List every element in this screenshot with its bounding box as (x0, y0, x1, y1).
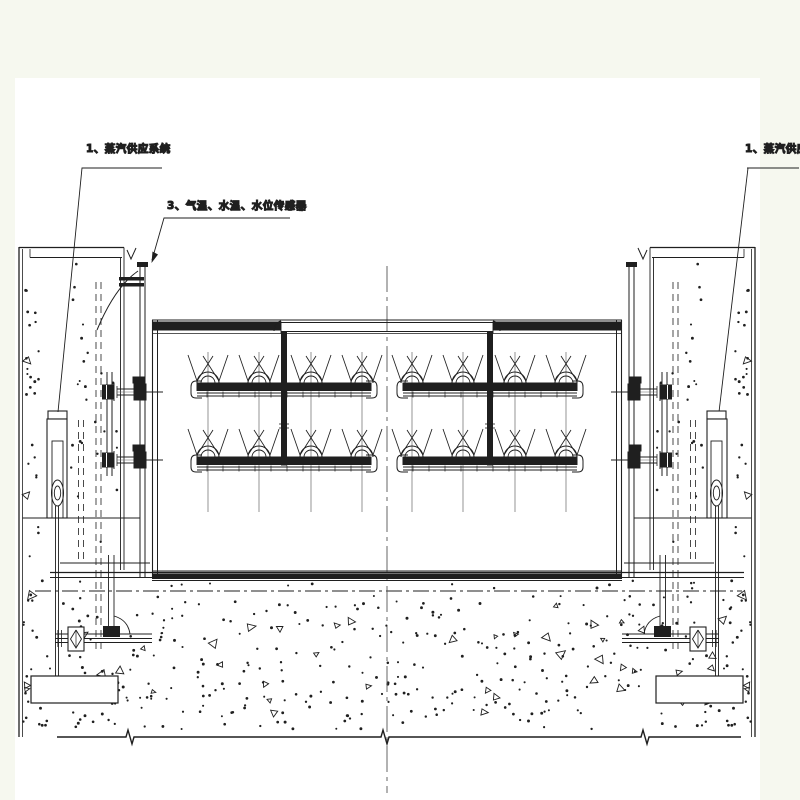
stipple-dot (530, 656, 532, 658)
stipple-dot (100, 541, 101, 542)
stipple-dot (26, 675, 28, 677)
stipple-dot (678, 421, 680, 423)
stipple-dot (25, 692, 27, 694)
stipple-dot (743, 376, 745, 378)
stipple-dot (221, 683, 223, 685)
stipple-dot (361, 700, 363, 702)
guide-cap (137, 262, 148, 267)
stipple-dot (82, 324, 83, 325)
stipple-dot (39, 723, 41, 725)
stipple-dot (354, 628, 356, 630)
stipple-dot (731, 580, 733, 582)
stipple-dot (198, 604, 199, 605)
stipple-dot (496, 647, 497, 648)
stipple-dot (606, 640, 607, 641)
stipple-dot (72, 608, 74, 610)
stipple-dot (45, 724, 47, 726)
stipple-dot (29, 556, 30, 557)
stipple-dot (718, 710, 720, 712)
stipple-dot (34, 393, 36, 395)
stipple-dot (647, 647, 648, 648)
sensor-label: 3、气温、水温、水位传感器 (167, 199, 307, 212)
guide-cap (626, 262, 637, 267)
stipple-dot (486, 704, 487, 705)
stipple-dot (694, 622, 695, 623)
stipple-dot (513, 713, 515, 715)
stipple-dot (689, 361, 691, 363)
stipple-dot (116, 431, 118, 433)
stipple-dot (747, 289, 749, 291)
stipple-dot (140, 697, 141, 698)
stipple-dot (363, 603, 365, 605)
stipple-dot (38, 526, 39, 527)
stipple-dot (657, 447, 658, 448)
stipple-dot (748, 692, 750, 694)
stipple-dot (86, 399, 87, 400)
stipple-dot (160, 636, 162, 638)
stipple-dot (373, 595, 374, 596)
stipple-dot (736, 636, 738, 638)
stipple-dot (696, 725, 698, 727)
stipple-dot (378, 607, 380, 609)
stipple-dot (738, 393, 740, 395)
stipple-dot (536, 693, 538, 695)
stipple-dot (34, 312, 36, 314)
stipple-dot (27, 311, 29, 313)
stipple-dot (307, 619, 309, 621)
stipple-dot (79, 440, 81, 442)
stipple-dot (174, 639, 176, 641)
stipple-dot (202, 695, 204, 697)
stipple-dot (403, 692, 405, 694)
cylinder-head (707, 411, 726, 419)
stipple-dot (407, 693, 409, 695)
stipple-dot (614, 653, 615, 654)
stipple-dot (239, 633, 240, 634)
stipple-dot (260, 725, 261, 726)
stipple-dot (586, 623, 588, 625)
stipple-dot (288, 585, 289, 586)
stipple-dot (28, 463, 29, 464)
stipple-dot (675, 726, 677, 728)
stipple-dot (618, 680, 619, 681)
spray-header-pipe (197, 457, 371, 465)
stipple-dot (372, 628, 373, 629)
stipple-dot (632, 580, 633, 581)
stipple-dot (172, 608, 173, 609)
stipple-dot (432, 615, 433, 616)
stipple-dot (221, 716, 222, 717)
stipple-dot (694, 381, 695, 382)
stipple-dot (697, 263, 699, 265)
stipple-dot (514, 666, 516, 668)
stipple-dot (141, 707, 142, 708)
stipple-dot (159, 639, 161, 641)
stipple-dot (311, 583, 313, 585)
stipple-dot (116, 447, 117, 448)
stipple-dot (723, 668, 724, 669)
stipple-dot (132, 654, 134, 656)
stipple-dot (27, 373, 28, 374)
stipple-dot (729, 622, 731, 624)
stipple-dot (723, 599, 724, 600)
conduit-band2 (119, 283, 144, 287)
stipple-dot (247, 662, 248, 663)
stipple-dot (28, 701, 29, 702)
stipple-dot (732, 642, 734, 644)
stipple-dot (503, 634, 505, 636)
stipple-dot (548, 710, 549, 711)
stipple-dot (333, 681, 335, 683)
stipple-dot (486, 647, 488, 649)
stipple-dot (497, 663, 498, 664)
stipple-dot (38, 532, 40, 534)
stipple-dot (72, 444, 74, 446)
stipple-dot (32, 600, 33, 601)
stipple-dot (75, 726, 77, 728)
stipple-dot (32, 630, 33, 631)
stipple-dot (83, 361, 85, 363)
stipple-dot (566, 690, 568, 692)
stipple-dot (452, 703, 453, 704)
stipple-dot (586, 686, 587, 687)
stipple-dot (700, 299, 702, 301)
stipple-dot (122, 686, 124, 688)
stipple-dot (738, 381, 740, 383)
stipple-dot (90, 639, 91, 640)
cylinder-body (707, 419, 727, 518)
stipple-dot (690, 582, 691, 583)
feed-pipe (282, 332, 287, 465)
stipple-dot (331, 646, 333, 648)
stipple-dot (661, 713, 662, 714)
stipple-dot (379, 635, 380, 636)
stipple-dot (162, 633, 163, 634)
stipple-dot (97, 453, 98, 454)
stipple-dot (669, 431, 670, 432)
stipple-dot (701, 725, 702, 726)
stipple-dot (653, 604, 655, 606)
stipple-dot (458, 609, 460, 611)
stipple-dot (710, 705, 712, 707)
stipple-dot (166, 698, 167, 699)
stipple-dot (676, 622, 678, 624)
stipple-dot (542, 670, 544, 672)
stipple-dot (310, 695, 312, 697)
stipple-dot (397, 662, 398, 663)
stipple-dot (438, 617, 440, 619)
stipple-dot (397, 676, 398, 677)
pipe-flange-block (654, 626, 671, 637)
stipple-dot (253, 613, 254, 614)
stipple-dot (421, 607, 423, 609)
stipple-dot (591, 728, 592, 729)
stipple-dot (73, 712, 74, 713)
stipple-dot (696, 384, 697, 385)
stipple-dot (738, 321, 739, 322)
stipple-dot (690, 324, 691, 325)
stipple-dot (744, 324, 746, 326)
stipple-dot (25, 717, 27, 719)
stipple-dot (243, 670, 245, 672)
stipple-dot (347, 715, 349, 717)
stipple-dot (27, 368, 28, 369)
stipple-dot (702, 467, 703, 468)
stipple-dot (23, 622, 24, 623)
paper (15, 78, 760, 800)
stipple-dot (87, 352, 88, 353)
stipple-dot (202, 663, 204, 665)
stipple-dot (257, 648, 258, 649)
stipple-dot (71, 467, 72, 468)
stipple-dot (735, 351, 736, 352)
stipple-dot (687, 596, 688, 597)
stipple-dot (593, 646, 595, 648)
stipple-dot (545, 701, 547, 703)
stipple-dot (299, 623, 300, 624)
stipple-dot (248, 665, 249, 666)
stipple-dot (509, 703, 511, 705)
stipple-dot (605, 676, 606, 677)
stipple-dot (387, 662, 389, 664)
stipple-dot (750, 721, 751, 722)
stipple-dot (29, 324, 31, 326)
stipple-dot (524, 682, 525, 683)
stipple-dot (388, 701, 389, 702)
stipple-dot (197, 671, 199, 673)
stipple-dot (546, 678, 547, 679)
stipple-dot (686, 352, 687, 353)
stipple-dot (38, 378, 40, 380)
stipple-dot (294, 612, 296, 614)
stipple-dot (309, 706, 311, 708)
stipple-dot (344, 720, 346, 722)
stipple-dot (481, 680, 483, 682)
stipple-dot (92, 721, 94, 723)
stipple-dot (36, 475, 37, 476)
stipple-dot (148, 683, 149, 684)
stipple-dot (264, 696, 265, 697)
stipple-dot (79, 597, 80, 598)
stipple-dot (354, 605, 355, 606)
stipple-dot (46, 656, 47, 657)
stipple-dot (530, 658, 532, 660)
stipple-dot (476, 674, 477, 675)
stipple-dot (224, 723, 226, 725)
stipple-dot (234, 601, 236, 603)
stipple-dot (171, 585, 172, 586)
stipple-dot (393, 715, 394, 716)
stipple-dot (750, 622, 751, 623)
cylinder-head (48, 411, 67, 419)
stipple-dot (528, 642, 530, 644)
stipple-dot (532, 596, 534, 598)
stipple-dot (607, 616, 608, 617)
stipple-dot (744, 556, 745, 557)
stipple-dot (705, 711, 706, 712)
stipple-dot (26, 393, 28, 395)
stipple-dot (435, 708, 437, 710)
stipple-dot (743, 387, 745, 389)
stipple-dot (504, 653, 506, 655)
stipple-dot (452, 693, 453, 694)
stipple-dot (41, 580, 43, 582)
stipple-dot (162, 725, 164, 727)
stipple-dot (152, 613, 153, 614)
stipple-dot (691, 442, 692, 443)
stipple-dot (284, 700, 285, 701)
stipple-dot (370, 657, 371, 658)
stipple-dot (201, 659, 203, 661)
stipple-dot (741, 600, 742, 601)
stipple-dot (346, 697, 348, 699)
stipple-dot (741, 630, 742, 631)
stipple-dot (630, 645, 632, 647)
stipple-dot (461, 655, 463, 657)
stipple-dot (276, 648, 278, 650)
stipple-dot (637, 647, 638, 648)
stipple-dot (185, 602, 186, 603)
stipple-dot (559, 603, 560, 604)
stipple-dot (130, 636, 132, 638)
stipple-dot (440, 614, 441, 615)
stipple-dot (173, 667, 175, 669)
stipple-dot (84, 386, 86, 388)
stipple-dot (587, 666, 588, 667)
stipple-dot (568, 623, 569, 624)
stipple-dot (657, 431, 659, 433)
stipple-dot (182, 646, 183, 647)
stipple-dot (305, 701, 306, 702)
stipple-dot (396, 601, 397, 602)
stipple-dot (726, 720, 728, 722)
stipple-dot (402, 722, 404, 724)
stipple-dot (574, 697, 576, 699)
stipple-dot (77, 384, 78, 385)
stipple-dot (495, 702, 497, 704)
stipple-dot (519, 689, 520, 690)
stipple-dot (349, 666, 350, 667)
stipple-dot (427, 633, 428, 634)
stipple-dot (280, 662, 281, 663)
stipple-dot (705, 721, 706, 722)
stipple-dot (295, 694, 297, 696)
stipple-dot (639, 624, 640, 625)
stipple-dot (610, 662, 611, 663)
stipple-dot (479, 603, 481, 605)
stipple-dot (726, 656, 727, 657)
stipple-dot (444, 643, 445, 644)
stipple-dot (665, 649, 667, 651)
stipple-dot (434, 635, 436, 637)
stipple-dot (656, 489, 658, 491)
stipple-dot (25, 289, 27, 291)
stipple-dot (319, 665, 320, 666)
stipple-dot (144, 726, 145, 727)
stipple-dot (689, 663, 691, 665)
stipple-dot (746, 373, 747, 374)
stipple-dot (29, 387, 31, 389)
stipple-dot (330, 702, 332, 704)
stipple-dot (661, 723, 663, 725)
stipple-dot (108, 719, 109, 720)
stipple-dot (742, 594, 744, 596)
stipple-dot (320, 691, 321, 692)
stipple-dot (473, 709, 474, 710)
stipple-dot (731, 724, 733, 726)
stipple-dot (146, 697, 148, 699)
stipple-dot (746, 368, 747, 369)
stipple-dot (31, 669, 32, 670)
stipple-dot (81, 337, 83, 339)
stipple-dot (627, 685, 629, 687)
stipple-dot (232, 712, 234, 714)
stipple-dot (690, 602, 691, 603)
stipple-dot (74, 286, 76, 288)
stipple-dot (432, 697, 433, 698)
stipple-dot (734, 723, 736, 725)
stipple-dot (583, 605, 584, 606)
stipple-dot (673, 541, 674, 542)
feed-pipe (488, 332, 493, 465)
stipple-dot (79, 381, 80, 382)
stipple-dot (638, 686, 639, 687)
stipple-dot (292, 728, 294, 730)
stipple-dot (209, 583, 210, 584)
technical-drawing: 1、蒸汽供应系统 3、气温、水温、水位传感器 1、蒸汽供应系统 (0, 0, 800, 800)
stipple-dot (493, 587, 494, 588)
stipple-dot (244, 705, 245, 706)
stipple-dot (116, 489, 118, 491)
stipple-dot (742, 669, 743, 670)
stipple-dot (69, 655, 71, 657)
stipple-dot (35, 321, 36, 322)
stipple-dot (454, 691, 456, 693)
stipple-dot (157, 596, 159, 598)
stipple-dot (739, 457, 740, 458)
stipple-dot (171, 688, 172, 689)
stipple-dot (78, 620, 80, 622)
stipple-dot (560, 596, 561, 597)
stipple-dot (79, 719, 81, 721)
stipple-dot (685, 636, 686, 637)
stipple-dot (278, 604, 280, 606)
stipple-dot (693, 440, 695, 442)
stipple-dot (118, 690, 119, 691)
stipple-dot (746, 675, 748, 677)
stipple-dot (432, 611, 434, 613)
stipple-dot (528, 720, 530, 722)
stipple-dot (46, 720, 48, 722)
stipple-dot (544, 711, 545, 712)
spray-header-pipe (403, 383, 577, 391)
stipple-dot (517, 631, 519, 633)
stipple-dot (404, 676, 406, 678)
stipple-dot (150, 695, 152, 697)
stipple-dot (202, 685, 204, 687)
stipple-dot (130, 669, 131, 670)
stipple-dot (80, 581, 81, 582)
stipple-dot (336, 728, 337, 729)
stipple-dot (40, 707, 42, 709)
stipple-dot (87, 615, 89, 617)
stipple-dot (230, 621, 232, 623)
stipple-dot (172, 618, 173, 619)
stipple-dot (500, 679, 502, 681)
stipple-dot (737, 475, 738, 476)
stipple-dot (422, 667, 423, 668)
stipple-dot (572, 649, 573, 650)
